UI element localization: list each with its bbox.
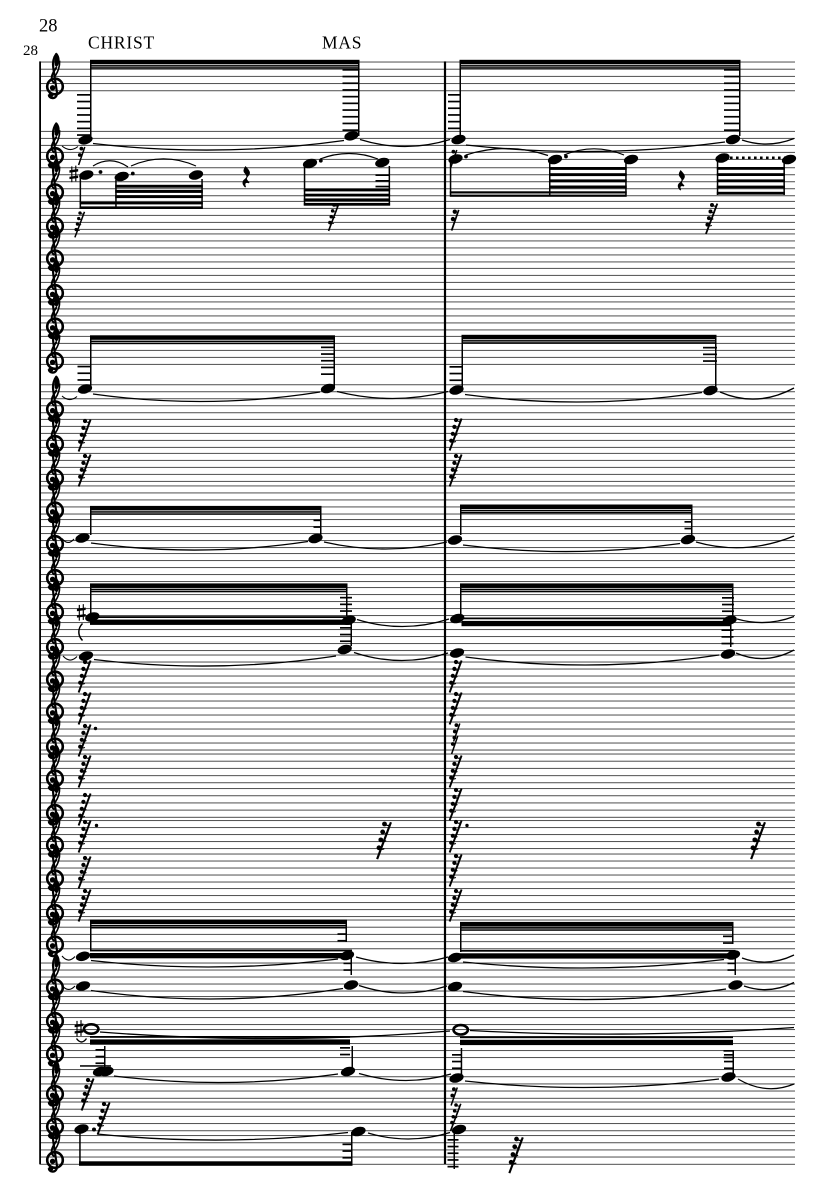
svg-text:MAS: MAS [322, 33, 362, 53]
svg-text:CHRIST: CHRIST [88, 33, 155, 53]
svg-text:28: 28 [23, 43, 38, 59]
svg-text:28: 28 [39, 17, 58, 37]
